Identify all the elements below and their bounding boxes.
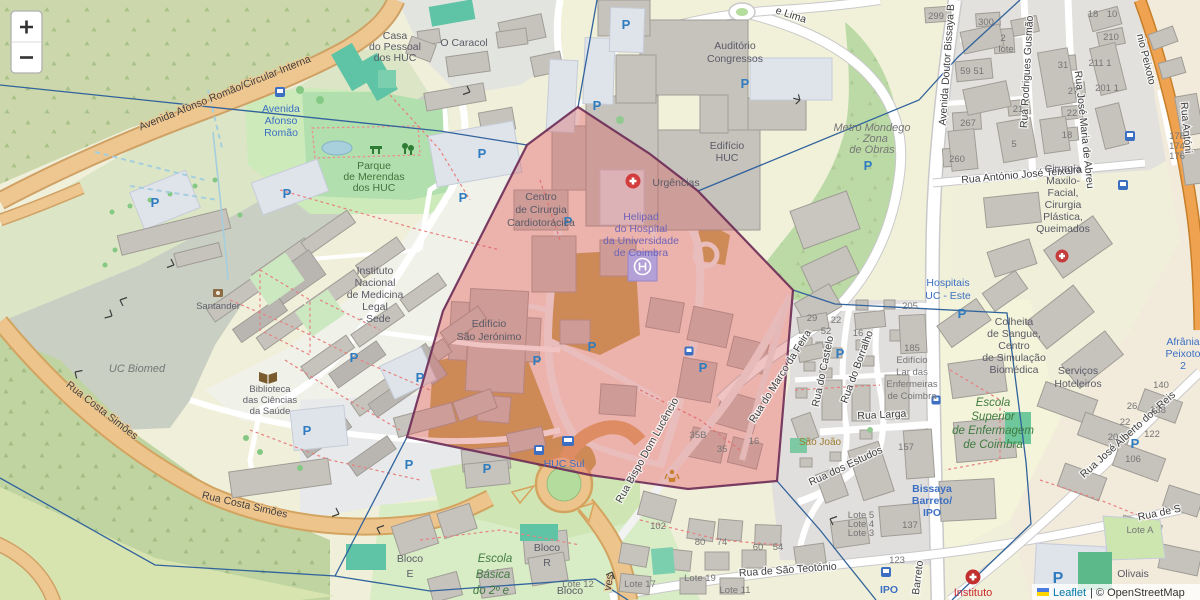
svg-text:300: 300 [978,17,994,28]
svg-text:das Ciências: das Ciências [243,395,298,406]
svg-text:P: P [699,360,708,375]
svg-text:Hoteleiros: Hoteleiros [1054,378,1101,390]
svg-text:P: P [622,17,631,32]
svg-text:Colheita: Colheita [995,316,1034,328]
svg-text:UC Biomed: UC Biomed [109,363,166,375]
svg-text:O Caracol: O Caracol [440,37,487,49]
svg-text:Queimados: Queimados [1036,223,1090,235]
svg-text:Cirurgia: Cirurgia [1045,163,1082,175]
svg-text:de Coimbra: de Coimbra [963,439,1022,451]
svg-text:Santander: Santander [196,301,240,312]
svg-text:de Sangue,: de Sangue, [987,328,1041,340]
svg-text:P: P [533,353,542,368]
svg-text:Bloco: Bloco [534,542,560,554]
svg-text:Superior: Superior [971,411,1016,423]
svg-text:Edifício: Edifício [710,140,745,152]
svg-text:Edifício: Edifício [896,355,927,366]
svg-text:P: P [864,158,873,173]
svg-text:Lote 17: Lote 17 [624,579,656,590]
svg-text:IPO: IPO [923,507,941,519]
svg-text:20: 20 [1108,432,1119,443]
svg-text:dos HUC: dos HUC [353,182,396,194]
svg-text:de Enfermagem: de Enfermagem [952,425,1034,437]
svg-text:Lote 12: Lote 12 [562,579,594,590]
svg-text:26: 26 [1127,401,1138,412]
svg-text:de Coimbra: de Coimbra [887,391,937,402]
svg-text:Instituto: Instituto [357,265,394,277]
svg-text:HUC Sul: HUC Sul [544,458,585,470]
svg-text:do Hospital: do Hospital [615,223,668,235]
svg-text:16: 16 [853,328,864,339]
svg-text:185: 185 [904,343,920,354]
svg-text:Instituto: Instituto [954,587,993,599]
svg-text:10: 10 [1107,9,1118,20]
svg-text:P: P [459,190,468,205]
svg-text:de Coimbra: de Coimbra [614,247,668,259]
svg-text:157: 157 [898,442,914,453]
svg-text:2: 2 [1000,33,1005,44]
svg-text:299: 299 [928,11,944,22]
svg-text:Nacional: Nacional [355,277,396,289]
svg-text:IPO: IPO [880,584,898,596]
svg-text:2: 2 [1180,360,1186,372]
svg-text:P: P [958,306,967,321]
svg-text:P: P [350,350,359,365]
svg-text:22: 22 [1067,108,1078,119]
svg-text:123: 123 [889,555,905,566]
svg-text:18: 18 [1088,9,1099,20]
svg-text:52: 52 [821,326,832,337]
svg-text:Afonso: Afonso [265,115,298,127]
svg-text:106: 106 [1125,454,1141,465]
svg-text:P: P [283,186,292,201]
svg-text:59 51: 59 51 [960,66,984,77]
svg-text:R: R [543,557,551,569]
svg-text:Cardiotorácica: Cardiotorácica [507,217,575,229]
svg-text:Facial,: Facial, [1048,187,1079,199]
svg-text:Centro: Centro [525,191,557,203]
svg-text:P: P [483,461,492,476]
svg-text:Lote A: Lote A [1127,525,1155,536]
svg-text:Olivais: Olivais [1117,568,1149,580]
svg-text:Leaflet: Leaflet [1053,587,1086,599]
svg-text:Plástica,: Plástica, [1043,211,1083,223]
svg-text:Escola: Escola [976,397,1011,409]
svg-text:35B: 35B [690,430,707,441]
svg-text:Biomédica: Biomédica [989,364,1038,376]
svg-text:5: 5 [1011,139,1016,150]
svg-text:22: 22 [1120,417,1131,428]
svg-text:80: 80 [695,537,706,548]
svg-text:54: 54 [773,542,784,553]
svg-text:102: 102 [650,521,666,532]
svg-text:Enfermeiras: Enfermeiras [886,379,937,390]
svg-text:Avenida: Avenida [262,103,300,115]
svg-text:18: 18 [1062,130,1073,141]
svg-text:Lote 11: Lote 11 [720,585,751,596]
svg-text:P: P [593,98,602,113]
svg-text:dos HUC: dos HUC [374,52,417,64]
svg-text:137: 137 [902,520,918,531]
svg-text:Centro: Centro [998,340,1030,352]
svg-text:Básica: Básica [476,569,511,581]
svg-text:Biblioteca: Biblioteca [249,384,291,395]
svg-text:- Sede: - Sede [360,313,391,325]
svg-text:201 1: 201 1 [1095,83,1119,94]
svg-text:de Cirurgia: de Cirurgia [515,204,567,216]
svg-text:122: 122 [1144,429,1160,440]
svg-text:Cirurgia: Cirurgia [1045,199,1082,211]
svg-text:P: P [151,195,160,210]
svg-text:da Universidade: da Universidade [603,235,679,247]
svg-text:31: 31 [1058,60,1069,71]
svg-text:Edifício: Edifício [472,318,507,330]
svg-text:P: P [405,457,414,472]
svg-text:Bloco: Bloco [397,553,423,565]
svg-text:Hospitais: Hospitais [926,277,969,289]
svg-text:29: 29 [807,313,818,324]
svg-text:Barreto/: Barreto/ [912,495,952,507]
svg-text:Congressos: Congressos [707,53,763,65]
svg-text:Lote 3: Lote 3 [848,528,874,539]
svg-text:22: 22 [831,315,842,326]
svg-text:Afrânia: Afrânia [1166,336,1199,348]
svg-text:HUC: HUC [716,152,739,164]
svg-text:74: 74 [717,537,728,548]
svg-text:P: P [836,346,845,361]
svg-text:260: 260 [949,154,965,165]
svg-text:São Jerónimo: São Jerónimo [457,331,522,343]
svg-text:Urgências: Urgências [652,177,699,189]
svg-text:P: P [416,370,425,385]
svg-text:de Simulação: de Simulação [982,352,1046,364]
svg-text:| © OpenStreetMap: | © OpenStreetMap [1090,587,1185,599]
svg-text:Lote 19: Lote 19 [684,573,716,584]
svg-text:Rua Larga: Rua Larga [857,408,907,423]
svg-text:P: P [588,339,597,354]
svg-text:60: 60 [753,542,764,553]
svg-text:UC - Este: UC - Este [925,290,971,302]
svg-text:da Saúde: da Saúde [250,406,291,417]
svg-text:21: 21 [1013,104,1024,115]
svg-text:São João: São João [799,437,842,448]
svg-text:de Obras: de Obras [849,144,895,156]
svg-text:Romão: Romão [264,127,298,139]
svg-text:Serviços: Serviços [1058,365,1098,377]
svg-text:210: 210 [1103,32,1119,43]
svg-text:Maxilo-: Maxilo- [1046,175,1080,187]
svg-text:Escola: Escola [478,553,513,565]
svg-text:267: 267 [960,118,976,129]
svg-text:de Medicina: de Medicina [347,289,404,301]
svg-text:Helipad: Helipad [623,211,659,223]
svg-text:211 1: 211 1 [1088,58,1111,69]
svg-text:Peixoto: Peixoto [1165,348,1200,360]
svg-text:35: 35 [717,444,728,455]
svg-text:Auditório: Auditório [714,40,756,52]
svg-text:Lar das: Lar das [896,367,928,378]
svg-text:E: E [406,568,413,580]
svg-text:P: P [741,76,750,91]
svg-text:Legal: Legal [362,301,388,313]
svg-text:P: P [478,146,487,161]
svg-text:176: 176 [1169,151,1185,162]
svg-text:P: P [303,423,312,438]
svg-text:do 2º e: do 2º e [473,585,509,597]
svg-text:lote: lote [998,44,1013,55]
svg-text:140: 140 [1153,380,1169,391]
svg-text:138: 138 [1150,405,1166,416]
svg-text:27: 27 [1068,86,1079,97]
svg-text:Bissaya: Bissaya [912,483,952,495]
svg-text:16: 16 [749,436,760,447]
svg-text:205: 205 [902,301,918,312]
